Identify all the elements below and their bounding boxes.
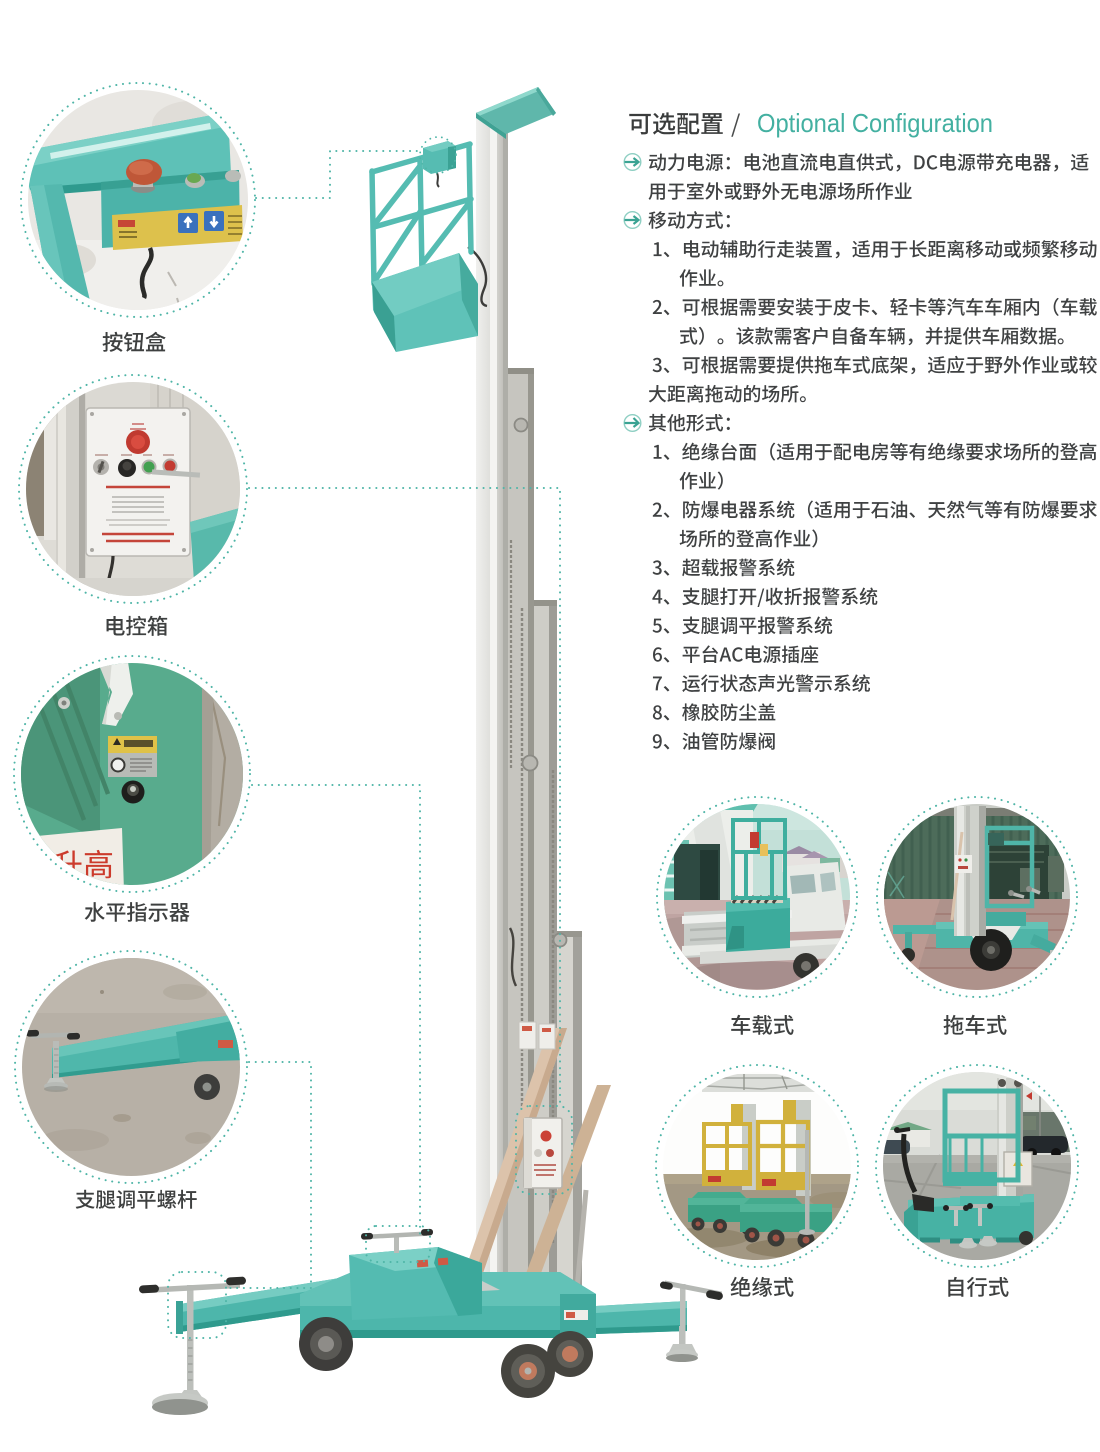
svg-text:Optional Configuration: Optional Configuration xyxy=(757,108,993,138)
